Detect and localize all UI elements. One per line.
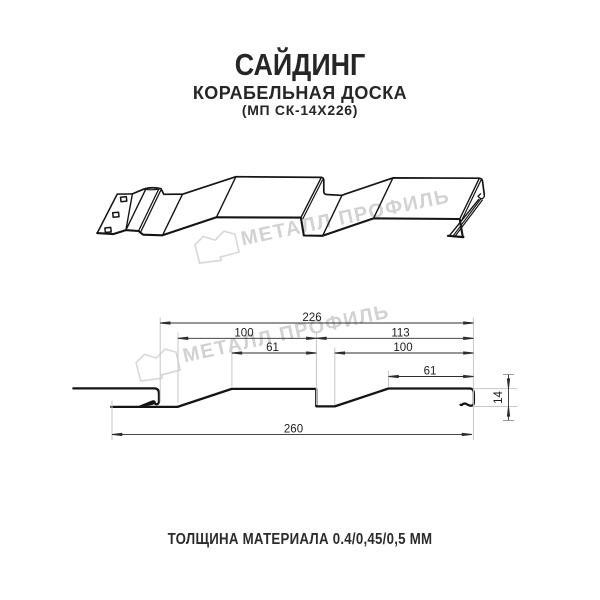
svg-text:113: 113 — [391, 328, 409, 340]
svg-text:100: 100 — [234, 328, 253, 340]
svg-text:61: 61 — [424, 366, 437, 378]
svg-text:61: 61 — [266, 342, 279, 354]
svg-text:100: 100 — [393, 342, 412, 354]
svg-text:226: 226 — [302, 312, 321, 324]
svg-text:260: 260 — [284, 423, 303, 435]
svg-text:МЕТАЛЛ ПРОФИЛЬ: МЕТАЛЛ ПРОФИЛЬ — [181, 301, 392, 368]
svg-text:14: 14 — [493, 391, 505, 404]
